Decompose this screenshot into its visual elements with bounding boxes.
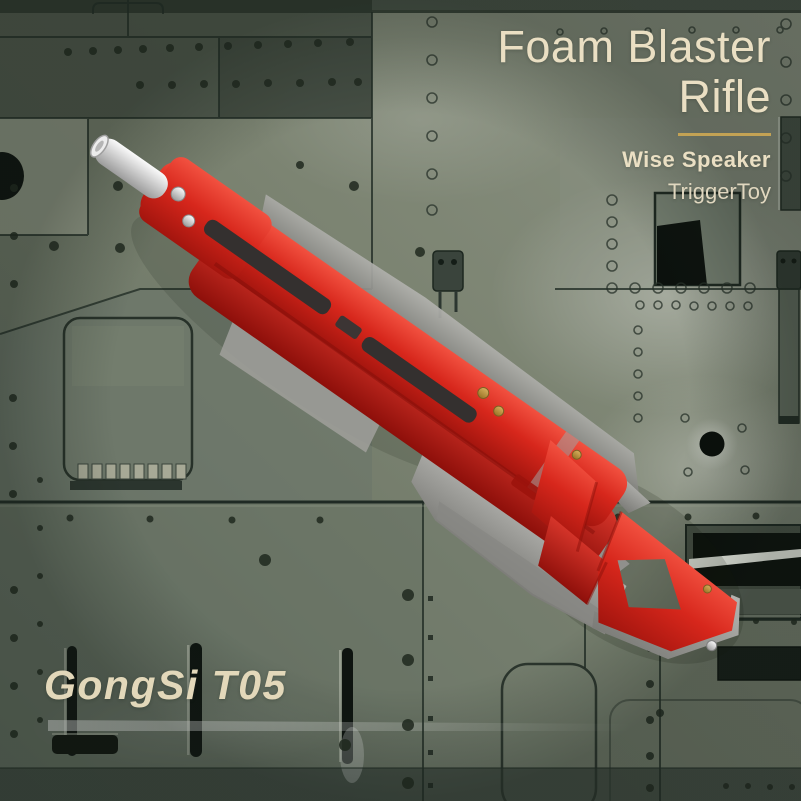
- product-title-line2: Rifle: [497, 72, 771, 122]
- brand-name: Wise Speaker: [497, 147, 771, 173]
- model-badge: GongSi T05: [44, 662, 287, 709]
- product-photo-card: Foam Blaster Rifle Wise Speaker TriggerT…: [0, 0, 801, 801]
- gold-divider: [678, 133, 771, 136]
- title-block: Foam Blaster Rifle Wise Speaker TriggerT…: [497, 22, 771, 205]
- maker-name: TriggerToy: [497, 179, 771, 205]
- product-title-line1: Foam Blaster: [497, 22, 771, 72]
